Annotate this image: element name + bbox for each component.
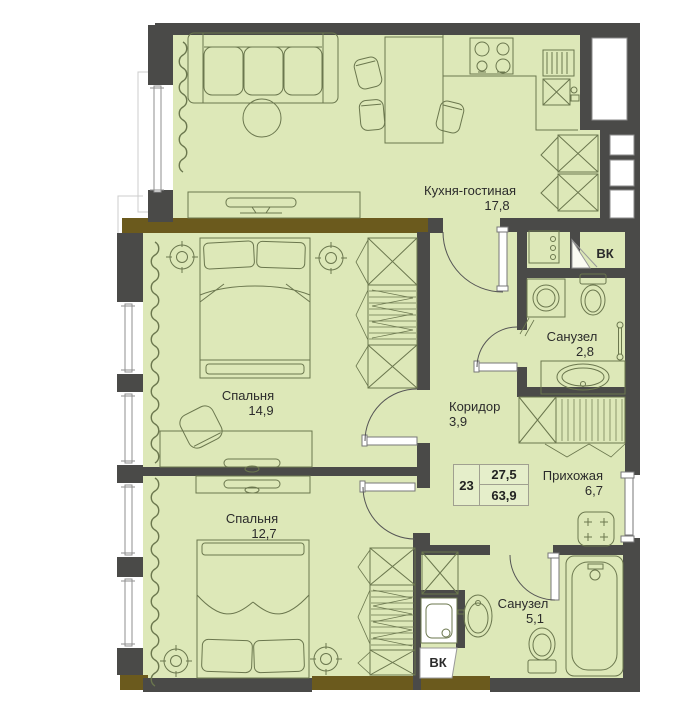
room-label-corridor: Коридор 3,9 — [449, 399, 500, 429]
room-area: 3,9 — [449, 414, 500, 429]
room-area: 17,8 — [451, 198, 543, 213]
room-area: 6,7 — [543, 483, 603, 498]
apartment-number: 23 — [454, 465, 480, 505]
room-name: Спальня — [226, 511, 278, 526]
room-label-bedroom-1: Спальня 14,9 — [222, 388, 274, 418]
room-label-kitchen-living: Кухня-гостиная 17,8 — [424, 183, 516, 213]
room-label-bedroom-2: Спальня 12,7 — [226, 511, 278, 541]
living-area-value: 27,5 — [480, 465, 528, 485]
room-name: Прихожая — [543, 468, 603, 483]
room-area: 5,1 — [510, 611, 561, 626]
shaft-label-text: ВК — [429, 655, 446, 670]
shaft-label-vk-top: ВК — [596, 246, 613, 261]
room-area: 2,8 — [560, 344, 611, 359]
room-name: Санузел — [547, 329, 598, 344]
balcony-outline — [118, 72, 152, 233]
room-area: 12,7 — [238, 526, 290, 541]
shaft-label-text: ВК — [596, 246, 613, 261]
vk-bottom-washer — [421, 598, 457, 643]
room-name: Спальня — [222, 388, 274, 403]
floor-plan: Кухня-гостиная 17,8 Спальня 14,9 Спальня… — [0, 0, 694, 708]
room-label-bathroom-small: Санузел 2,8 — [547, 329, 598, 359]
room-area: 14,9 — [235, 403, 287, 418]
room-label-bathroom-big: Санузел 5,1 — [498, 596, 549, 626]
shaft-label-vk-bottom: ВК — [429, 655, 446, 670]
room-name: Коридор — [449, 399, 500, 414]
room-name: Кухня-гостиная — [424, 183, 516, 198]
total-area-value: 63,9 — [480, 485, 528, 505]
room-label-hallway: Прихожая 6,7 — [543, 468, 603, 498]
apartment-info-table: 23 27,5 63,9 — [453, 464, 529, 506]
room-name: Санузел — [498, 596, 549, 611]
